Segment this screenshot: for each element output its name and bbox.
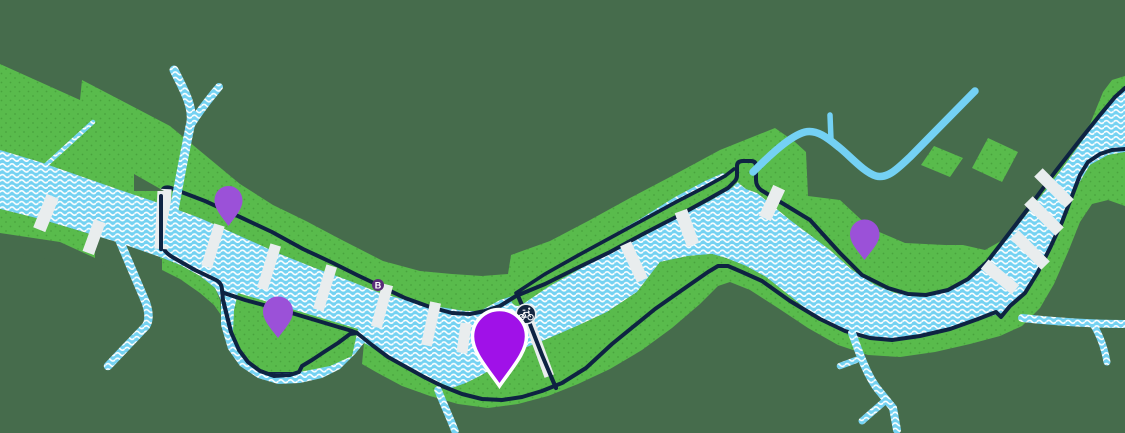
svg-text:B: B xyxy=(375,281,382,291)
